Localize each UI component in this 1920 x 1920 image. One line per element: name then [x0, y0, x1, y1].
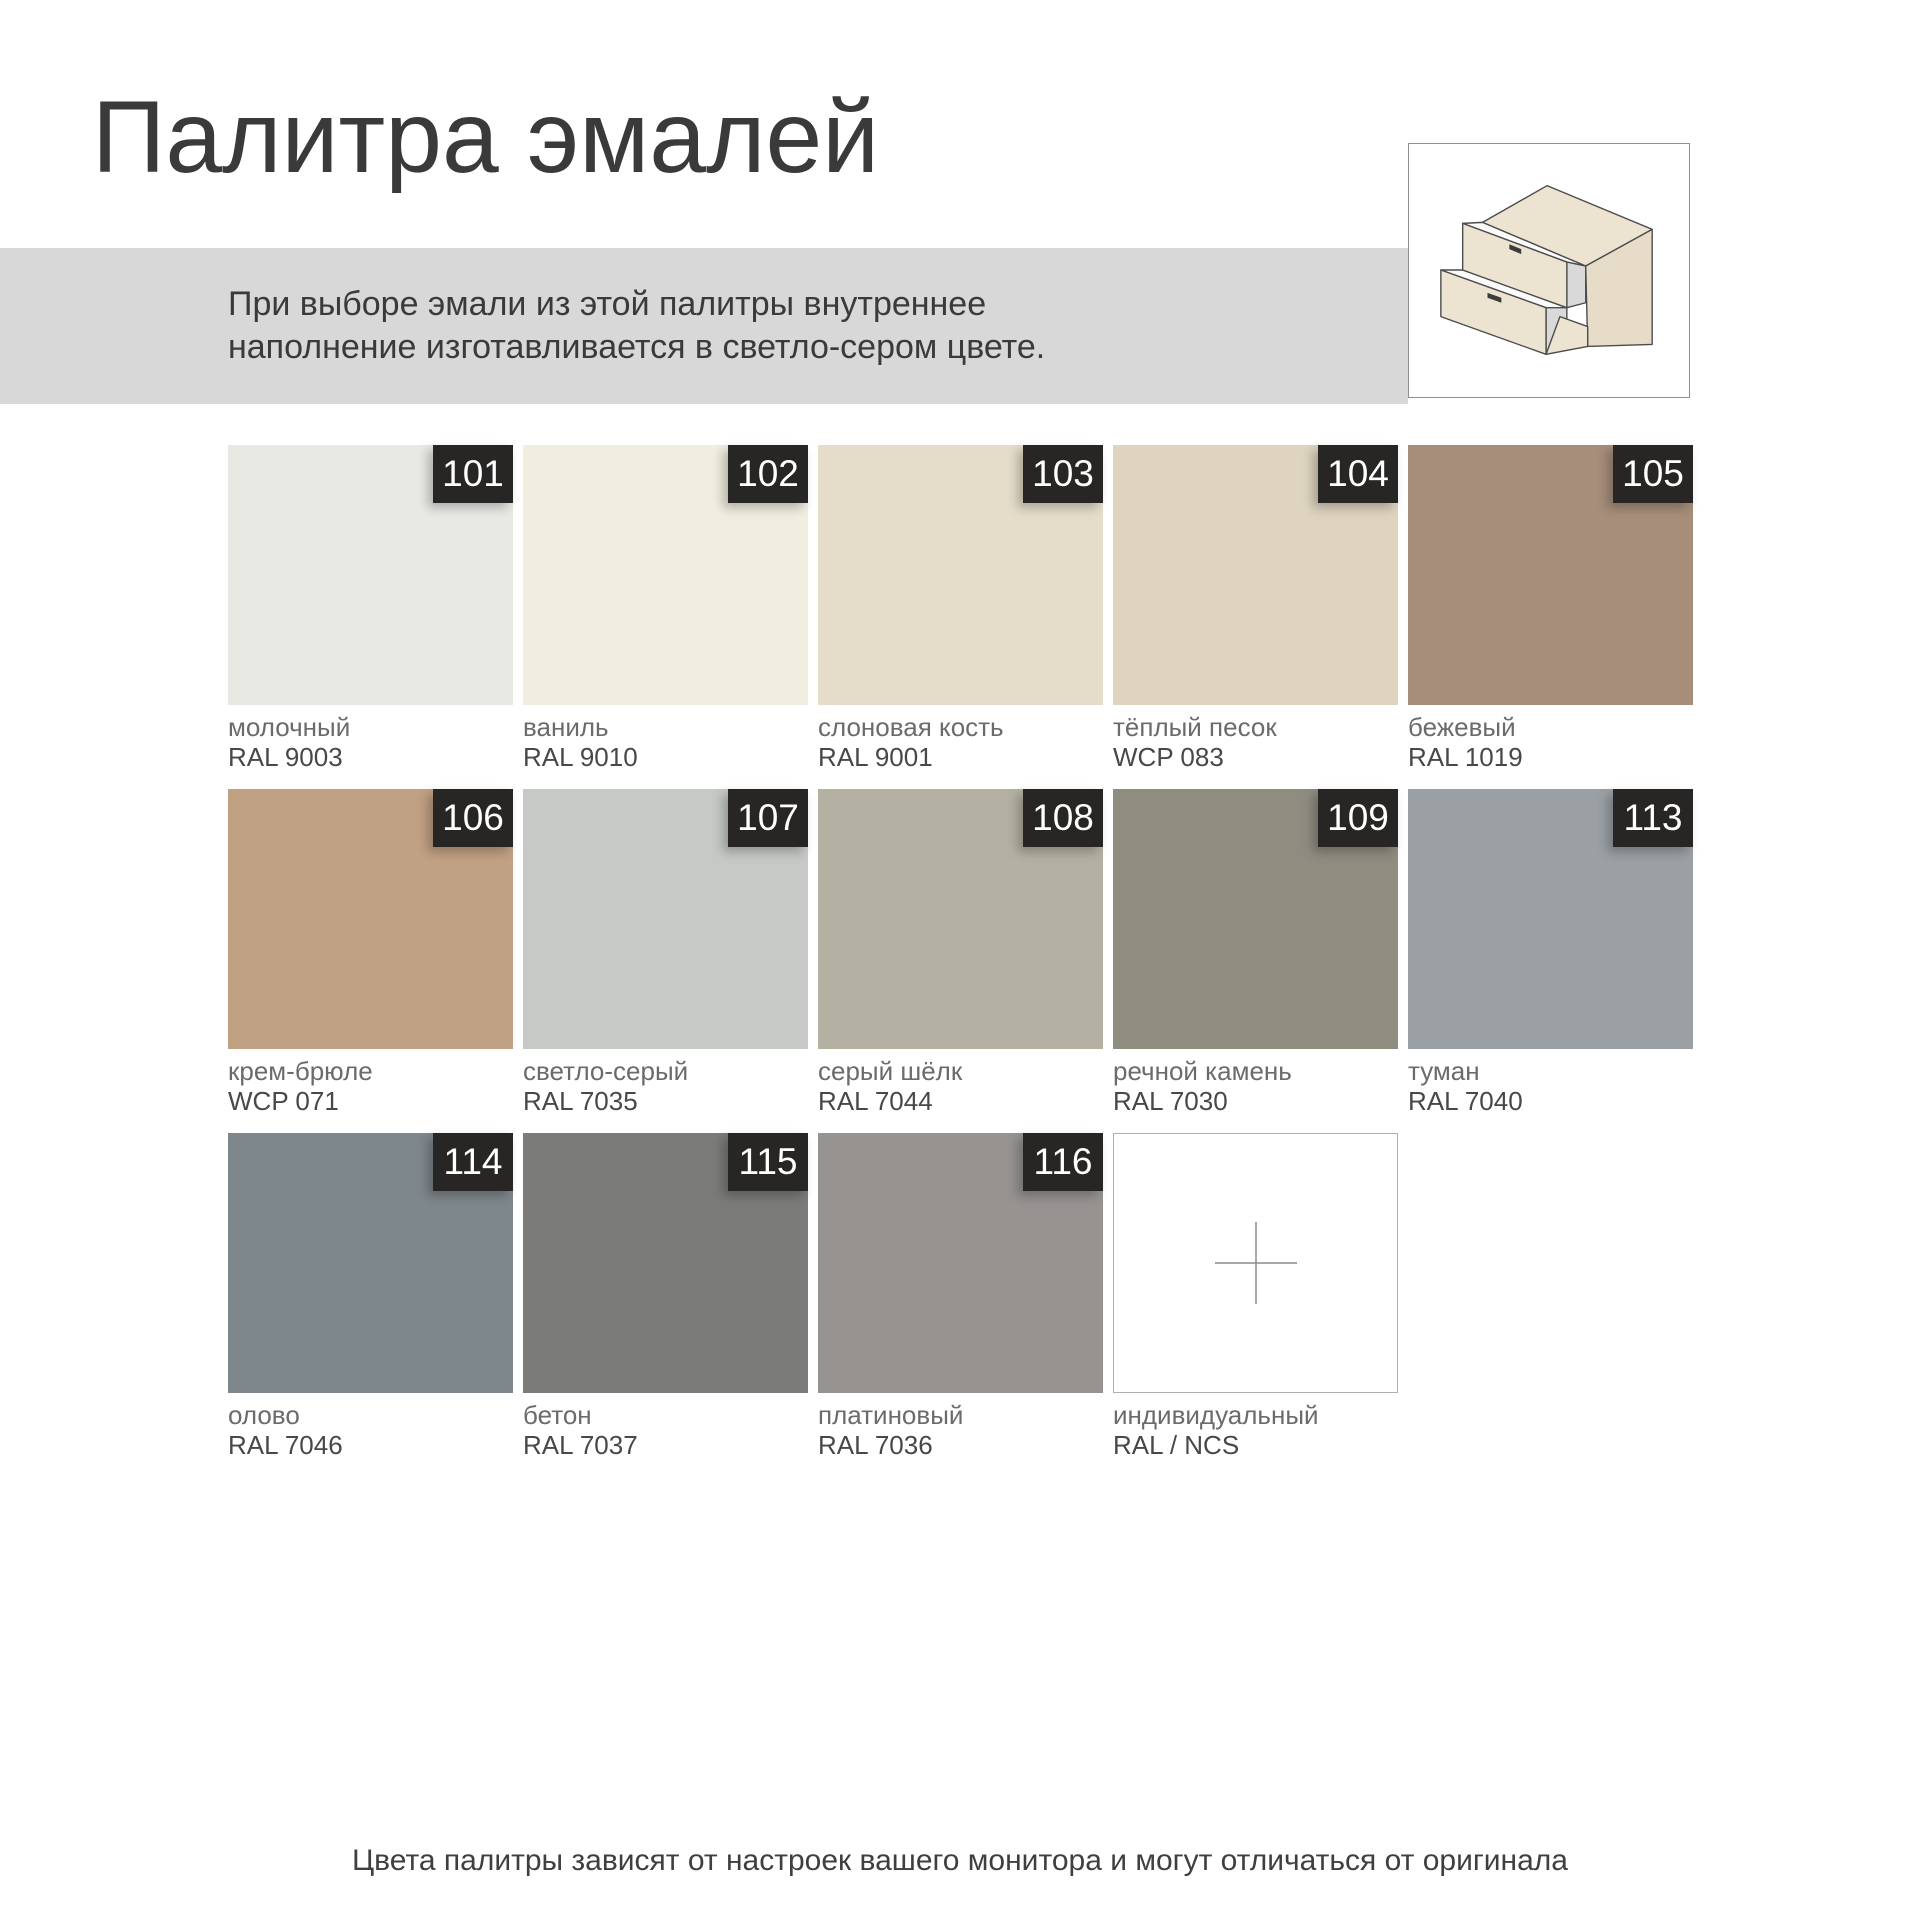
swatch-number-badge: 116 [1023, 1133, 1103, 1191]
swatch-name: индивидуальный [1113, 1401, 1398, 1429]
plus-icon [1215, 1222, 1297, 1304]
swatch-cell: 109 речной камень RAL 7030 [1113, 789, 1398, 1133]
swatch-cell: 105 бежевый RAL 1019 [1408, 445, 1693, 789]
swatch-code: RAL 1019 [1408, 743, 1693, 771]
swatch-number-badge: 109 [1318, 789, 1398, 847]
swatch-number-badge: 108 [1023, 789, 1103, 847]
page-title: Палитра эмалей [92, 84, 879, 191]
swatch-cell: 115 бетон RAL 7037 [523, 1133, 808, 1477]
swatch-cell: 108 серый шёлк RAL 7044 [818, 789, 1103, 1133]
swatch: 103 [818, 445, 1103, 705]
swatch-cell: 114 олово RAL 7046 [228, 1133, 513, 1477]
swatch-code: RAL 9010 [523, 743, 808, 771]
swatch-cell: 102 ваниль RAL 9010 [523, 445, 808, 789]
swatch-name: тёплый песок [1113, 713, 1398, 741]
swatch-name: олово [228, 1401, 513, 1429]
drawer-illustration [1408, 143, 1690, 398]
swatch: 109 [1113, 789, 1398, 1049]
swatch: 102 [523, 445, 808, 705]
swatch-code: WCP 071 [228, 1087, 513, 1115]
swatch-code: RAL 9001 [818, 743, 1103, 771]
swatch: 106 [228, 789, 513, 1049]
swatch: 101 [228, 445, 513, 705]
swatch-name: слоновая кость [818, 713, 1103, 741]
swatch-number-badge: 101 [433, 445, 513, 503]
swatch-number-badge: 114 [433, 1133, 513, 1191]
swatch-code: WCP 083 [1113, 743, 1398, 771]
swatch: 113 [1408, 789, 1693, 1049]
swatch-number-badge: 104 [1318, 445, 1398, 503]
swatch-cell: 116 платиновый RAL 7036 [818, 1133, 1103, 1477]
swatch-name: светло-серый [523, 1057, 808, 1085]
swatch-code: RAL 7046 [228, 1431, 513, 1459]
swatch-cell: 104 тёплый песок WCP 083 [1113, 445, 1398, 789]
swatch-name: платиновый [818, 1401, 1103, 1429]
swatch: 116 [818, 1133, 1103, 1393]
swatch: 115 [523, 1133, 808, 1393]
swatch-code: RAL 7040 [1408, 1087, 1693, 1115]
swatch-number-badge: 115 [728, 1133, 808, 1191]
swatch-cell: 103 слоновая кость RAL 9001 [818, 445, 1103, 789]
swatch-code: RAL / NCS [1113, 1431, 1398, 1459]
note-text: При выборе эмали из этой палитры внутрен… [0, 283, 1045, 369]
swatch-grid: 101 молочный RAL 9003 102 ваниль RAL 901… [228, 445, 1693, 1477]
swatch-number-badge: 102 [728, 445, 808, 503]
swatch-cell: 106 крем-брюле WCP 071 [228, 789, 513, 1133]
swatch-name: туман [1408, 1057, 1693, 1085]
swatch-number-badge: 103 [1023, 445, 1103, 503]
swatch-cell: 113 туман RAL 7040 [1408, 789, 1693, 1133]
swatch-number-badge: 113 [1613, 789, 1693, 847]
swatch-code: RAL 7044 [818, 1087, 1103, 1115]
two-drawer-cabinet-icon [1409, 144, 1689, 397]
swatch-code: RAL 7030 [1113, 1087, 1398, 1115]
swatch-cell: 107 светло-серый RAL 7035 [523, 789, 808, 1133]
swatch-number-badge: 107 [728, 789, 808, 847]
swatch-number-badge: 106 [433, 789, 513, 847]
swatch [1113, 1133, 1398, 1393]
footer-note: Цвета палитры зависят от настроек вашего… [0, 1844, 1920, 1878]
swatch: 107 [523, 789, 808, 1049]
swatch: 108 [818, 789, 1103, 1049]
swatch-number-badge: 105 [1613, 445, 1693, 503]
swatch-name: серый шёлк [818, 1057, 1103, 1085]
swatch-code: RAL 9003 [228, 743, 513, 771]
swatch-name: бежевый [1408, 713, 1693, 741]
swatch-name: речной камень [1113, 1057, 1398, 1085]
swatch-name: бетон [523, 1401, 808, 1429]
swatch: 104 [1113, 445, 1398, 705]
swatch-name: ваниль [523, 713, 808, 741]
swatch-cell: индивидуальный RAL / NCS [1113, 1133, 1398, 1477]
swatch-cell: 101 молочный RAL 9003 [228, 445, 513, 789]
swatch-name: молочный [228, 713, 513, 741]
note-banner: При выборе эмали из этой палитры внутрен… [0, 248, 1408, 404]
swatch: 114 [228, 1133, 513, 1393]
swatch: 105 [1408, 445, 1693, 705]
swatch-name: крем-брюле [228, 1057, 513, 1085]
swatch-code: RAL 7035 [523, 1087, 808, 1115]
swatch-code: RAL 7036 [818, 1431, 1103, 1459]
swatch-code: RAL 7037 [523, 1431, 808, 1459]
